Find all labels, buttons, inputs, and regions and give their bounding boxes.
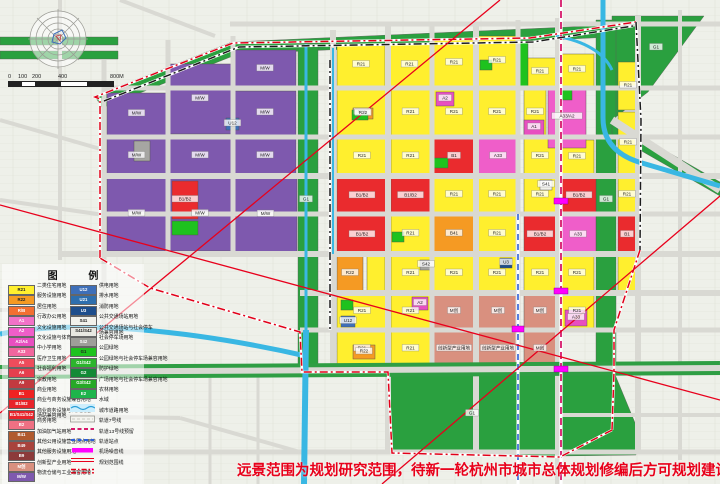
svg-text:R21: R21 — [450, 192, 459, 197]
svg-text:R21: R21 — [405, 62, 414, 67]
svg-text:B1: B1 — [624, 232, 630, 237]
scale-label: 800M — [110, 74, 124, 80]
legend-swatch: U21 — [70, 295, 97, 305]
scale-bar-labels: 0100200400800M — [8, 74, 126, 81]
svg-text:创新型产业用地: 创新型产业用地 — [482, 345, 515, 352]
legend-swatch: R22 — [8, 295, 35, 305]
legend-swatch: B1/B2 — [8, 399, 35, 409]
legend-label: 公共交通场站用地 — [99, 315, 169, 320]
svg-text:M/W: M/W — [195, 153, 205, 158]
boundary-symbol-icon — [70, 462, 95, 470]
legend-label: 供电用地 — [99, 284, 169, 289]
svg-text:R21: R21 — [536, 69, 545, 74]
legend-swatch: B1 — [8, 389, 35, 399]
svg-text:R21: R21 — [573, 308, 582, 313]
svg-text:R21: R21 — [406, 153, 415, 158]
svg-text:B41: B41 — [450, 231, 459, 236]
legend-label: 机场噪音线 — [99, 450, 169, 455]
svg-text:R22: R22 — [346, 270, 355, 275]
svg-text:R21: R21 — [406, 109, 415, 114]
legend-label: 轨道站点 — [99, 440, 169, 445]
svg-text:R21: R21 — [406, 270, 415, 275]
wind-rose-icon — [18, 6, 98, 74]
svg-text:R21: R21 — [358, 308, 367, 313]
legend-label: 广场用地与社会停车场兼容用地 — [99, 378, 169, 383]
svg-text:R21: R21 — [493, 58, 502, 63]
legend-swatch: U12 — [70, 285, 97, 295]
station-symbol-icon — [70, 441, 95, 449]
svg-text:R21: R21 — [624, 83, 633, 88]
svg-text:R21: R21 — [623, 192, 632, 197]
svg-text:M/W: M/W — [195, 96, 205, 101]
svg-text:R21: R21 — [573, 270, 582, 275]
legend-swatch: G1/S42 — [70, 358, 97, 368]
legend-label: 农林用地 — [99, 388, 169, 393]
svg-text:M/W: M/W — [260, 153, 270, 158]
legend-swatch: M创 — [8, 462, 35, 472]
svg-text:A33: A33 — [572, 315, 581, 320]
svg-text:R21: R21 — [624, 140, 633, 145]
svg-text:R21: R21 — [406, 308, 415, 313]
legend-swatch: S42 — [70, 337, 97, 347]
scale-label: 0 — [8, 74, 11, 80]
svg-text:M/W: M/W — [260, 110, 270, 115]
svg-text:G1: G1 — [603, 197, 610, 202]
legend-label: 公园绿地 — [99, 346, 169, 351]
scale-label: 200 — [32, 74, 41, 80]
svg-text:R21: R21 — [493, 192, 502, 197]
legend-label: 轨道13号线预留 — [99, 430, 169, 435]
rail13-symbol-icon — [70, 431, 95, 439]
svg-text:R21: R21 — [406, 231, 415, 236]
legend-label: 轨道7号线 — [99, 419, 169, 424]
legend-label: 规划范围线 — [99, 461, 169, 466]
svg-text:B1/B2: B1/B2 — [404, 193, 417, 198]
rail7-symbol-icon — [70, 420, 95, 428]
svg-text:R22: R22 — [360, 349, 369, 354]
svg-text:M/W: M/W — [132, 153, 142, 158]
noise-symbol-icon — [70, 451, 95, 459]
svg-text:S41: S41 — [542, 182, 551, 187]
legend-swatch: B2 — [8, 420, 35, 430]
legend-label: 排水用地 — [99, 294, 169, 299]
legend-swatch: S41 — [70, 316, 97, 326]
svg-text:M创: M创 — [536, 345, 545, 352]
legend-swatch: E2 — [70, 389, 97, 399]
legend-swatch: B41 — [8, 431, 35, 441]
svg-text:R21: R21 — [450, 60, 459, 65]
svg-text:R21: R21 — [450, 270, 459, 275]
road-symbol-icon — [70, 410, 95, 418]
svg-text:M创: M创 — [450, 307, 459, 314]
svg-text:B1/B2: B1/B2 — [573, 193, 586, 198]
svg-text:M/W: M/W — [132, 111, 142, 116]
legend-swatch: A5 — [8, 358, 35, 368]
svg-text:A33: A33 — [574, 232, 583, 237]
svg-text:A2: A2 — [442, 96, 448, 101]
svg-text:R21: R21 — [573, 154, 582, 159]
svg-text:M/W: M/W — [195, 211, 205, 216]
svg-text:R22: R22 — [359, 110, 368, 115]
svg-text:U3: U3 — [503, 260, 509, 265]
water-symbol-icon — [70, 399, 95, 407]
svg-text:R21: R21 — [406, 346, 415, 351]
svg-text:B1: B1 — [451, 153, 457, 158]
legend-label: 社会停车场用地 — [99, 336, 169, 341]
legend-title: 图 例 — [2, 264, 144, 284]
svg-text:R21: R21 — [573, 67, 582, 72]
legend-label: 公共交通场站与社会停车 场兼容用地 — [99, 326, 169, 336]
scale-label: 400 — [58, 74, 67, 80]
svg-text:M创: M创 — [494, 307, 503, 314]
legend-label: 消防用地 — [99, 305, 169, 310]
legend-swatch: B9 — [8, 451, 35, 461]
legend-swatch: S41/S42 — [70, 327, 97, 337]
svg-text:R21: R21 — [493, 270, 502, 275]
scale-bar-rule — [8, 81, 114, 87]
legend-label: 防护绿地 — [99, 367, 169, 372]
planning-map-screenshot: M/WM/WM/WM/WM/WM/WM/WM/WM/WM/WB1/B2U12R2… — [0, 0, 720, 484]
svg-text:M/W: M/W — [260, 66, 270, 71]
legend-swatch: A2/A4 — [8, 337, 35, 347]
svg-text:A33/A2: A33/A2 — [559, 114, 575, 119]
svg-text:U12: U12 — [228, 121, 237, 126]
svg-text:B1/B2: B1/B2 — [356, 193, 369, 198]
svg-text:R21: R21 — [450, 109, 459, 114]
legend-swatch: R21 — [8, 285, 35, 295]
legend-swatch: A1 — [8, 316, 35, 326]
scale-label: 100 — [18, 74, 27, 80]
svg-text:R21: R21 — [536, 192, 545, 197]
legend-label: 公园绿地与社会停车场兼容用地 — [99, 357, 169, 362]
svg-text:M/W: M/W — [261, 211, 271, 216]
legend-swatch: G1 — [70, 347, 97, 357]
legend-label: 水域 — [99, 398, 169, 403]
svg-text:A1: A1 — [531, 124, 537, 129]
svg-text:B1/B2: B1/B2 — [534, 232, 547, 237]
svg-text:创新型产业用地: 创新型产业用地 — [438, 345, 471, 352]
legend-swatch: M/W — [8, 472, 35, 482]
svg-text:A33: A33 — [494, 153, 503, 158]
svg-text:R21: R21 — [358, 153, 367, 158]
svg-text:G1: G1 — [469, 411, 476, 416]
svg-text:U12: U12 — [344, 318, 353, 323]
svg-text:B1/B2: B1/B2 — [179, 197, 192, 202]
legend-swatch: A2 — [8, 327, 35, 337]
svg-text:A2: A2 — [417, 300, 423, 305]
svg-text:R21: R21 — [531, 109, 540, 114]
legend-swatch: G2 — [70, 368, 97, 378]
svg-text:G1: G1 — [653, 45, 660, 50]
svg-text:R21: R21 — [536, 270, 545, 275]
legend-swatch: U3 — [70, 306, 97, 316]
legend-swatch: A33 — [8, 347, 35, 357]
svg-text:G1: G1 — [303, 197, 310, 202]
plan-note: 远景范围为规划研究范围，待新一轮杭州市城市总体规划修编后方可规划建设。 — [237, 459, 720, 480]
svg-text:R21: R21 — [493, 109, 502, 114]
legend-swatch: G3/S42 — [70, 379, 97, 389]
legend-swatch: B49 — [8, 441, 35, 451]
scale-bar: 0100200400800M — [8, 74, 126, 90]
legend-swatch: A9 — [8, 379, 35, 389]
legend-swatch: A6 — [8, 368, 35, 378]
legend-panel: 图 例 R21二类住宅用地R22服务设施用地R/B居住用地A1行政办公用地A2文… — [2, 264, 144, 484]
legend-swatch: B1/S41/S42 — [8, 410, 35, 420]
svg-text:M/W: M/W — [132, 211, 142, 216]
svg-text:B1/B2: B1/B2 — [356, 232, 369, 237]
svg-text:M创: M创 — [536, 307, 545, 314]
svg-text:R21: R21 — [493, 231, 502, 236]
svg-text:R21: R21 — [357, 62, 366, 67]
legend-label: 城市道路用地 — [99, 409, 169, 414]
svg-text:S42: S42 — [422, 262, 431, 267]
svg-text:R21: R21 — [536, 153, 545, 158]
legend-swatch: R/B — [8, 306, 35, 316]
